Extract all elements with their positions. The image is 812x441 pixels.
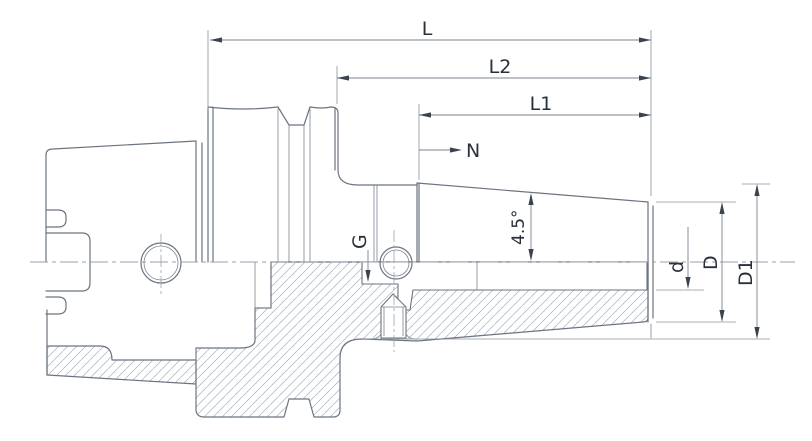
dimension-L1: L1 <box>419 93 651 118</box>
section-hatch-bottom <box>47 262 648 417</box>
dimension-L2: L2 <box>337 56 651 81</box>
flange-bore-column <box>255 262 271 308</box>
toolholder-drawing: L L2 L1 N G <box>0 0 812 441</box>
dim-label-d: d <box>666 261 688 273</box>
dim-label-L: L <box>422 18 433 40</box>
dim-label-taper-angle: 4.5° <box>509 209 529 245</box>
dim-label-G: G <box>349 234 371 249</box>
dimension-d: d <box>666 227 691 289</box>
dimension-taper-angle: 4.5° <box>509 193 534 261</box>
dim-label-D: D <box>700 255 722 270</box>
shank-section <box>47 346 196 384</box>
dim-label-N: N <box>466 140 480 162</box>
dimension-D: D <box>700 202 725 322</box>
dimension-D1: D1 <box>735 184 760 339</box>
dim-label-D1: D1 <box>735 259 757 286</box>
dimension-N: N <box>419 140 480 162</box>
dim-label-L2: L2 <box>489 56 512 78</box>
dimension-L: L <box>210 18 651 43</box>
technical-drawing-page: L L2 L1 N G <box>0 0 812 441</box>
dim-label-L1: L1 <box>530 93 553 115</box>
